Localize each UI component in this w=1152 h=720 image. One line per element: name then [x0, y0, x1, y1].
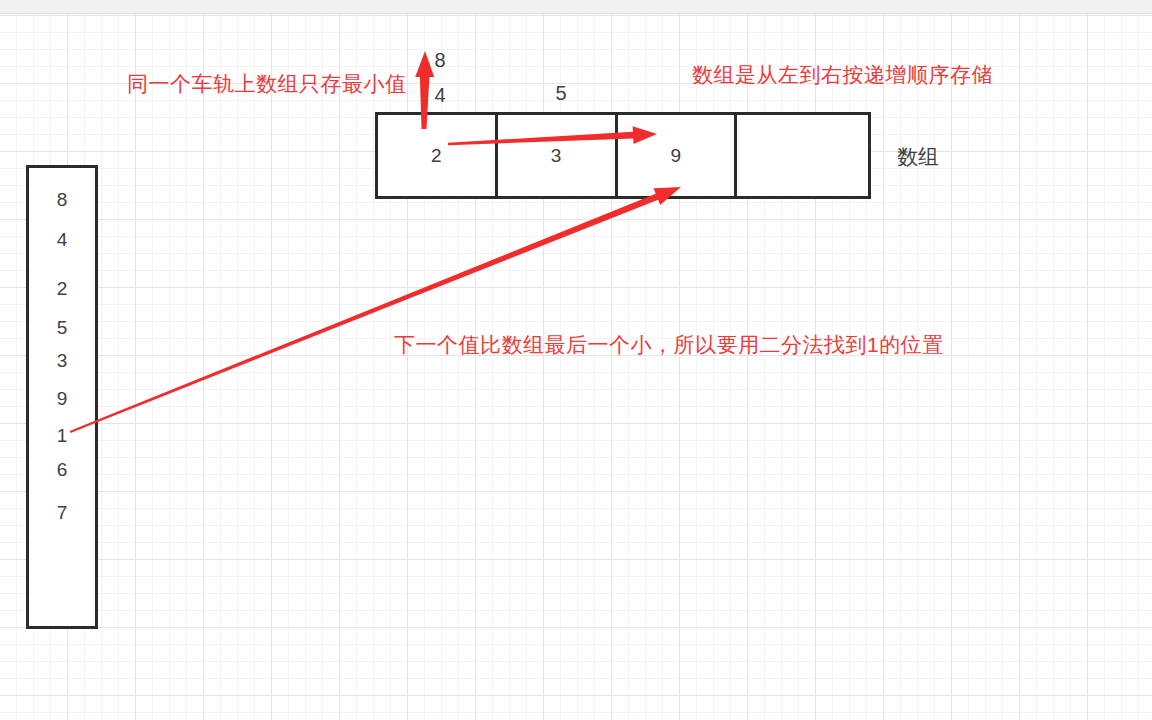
note-binary-search[interactable]: 下一个值比数组最后一个小，所以要用二分法找到1的位置 [394, 331, 944, 359]
arrow-value1-to-cell9[interactable] [70, 187, 681, 433]
note-rail-min-value[interactable]: 同一个车轨上数组只存最小值 [127, 70, 407, 98]
overflow-value-5[interactable]: 5 [555, 82, 566, 105]
array-cell-2[interactable]: 9 [618, 115, 738, 196]
array-cell-1[interactable]: 3 [498, 115, 618, 196]
overflow-value-8[interactable]: 8 [434, 49, 445, 72]
annotation-arrows-layer [0, 0, 1152, 720]
rail-value-7[interactable]: 6 [29, 459, 95, 481]
rail-value-4[interactable]: 3 [29, 350, 95, 372]
array-cell-0[interactable]: 2 [378, 115, 498, 196]
overflow-value-4[interactable]: 4 [434, 84, 445, 107]
array-cell-3[interactable] [737, 115, 868, 196]
canvas-top-strip [0, 0, 1152, 14]
rail-value-6[interactable]: 1 [29, 425, 95, 447]
rail-value-3[interactable]: 5 [29, 317, 95, 339]
rail-value-5[interactable]: 9 [29, 388, 95, 410]
rail-value-1[interactable]: 4 [29, 229, 95, 251]
rail-value-8[interactable]: 7 [29, 502, 95, 524]
rail-value-0[interactable]: 8 [29, 189, 95, 211]
rail-box[interactable]: 842539167 [26, 165, 98, 629]
array-box[interactable]: 239 [375, 112, 871, 199]
array-label[interactable]: 数组 [897, 143, 939, 171]
note-array-increasing-order[interactable]: 数组是从左到右按递增顺序存储 [692, 61, 993, 89]
drawing-canvas[interactable]: 842539167 239 845 数组 同一个车轨上数组只存最小值 数组是从左… [0, 0, 1152, 720]
rail-value-2[interactable]: 2 [29, 278, 95, 300]
